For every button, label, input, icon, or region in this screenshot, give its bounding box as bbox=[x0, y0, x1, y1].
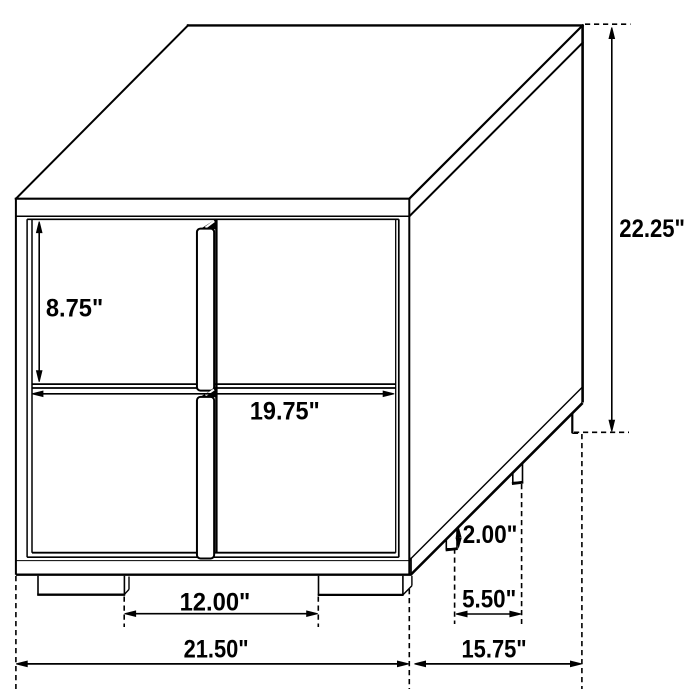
svg-text:15.75": 15.75" bbox=[462, 636, 527, 664]
svg-text:19.75": 19.75" bbox=[250, 397, 320, 425]
svg-text:2.00": 2.00" bbox=[463, 521, 518, 549]
svg-text:8.75": 8.75" bbox=[46, 294, 103, 322]
svg-text:21.50": 21.50" bbox=[184, 636, 249, 664]
svg-text:12.00": 12.00" bbox=[180, 588, 251, 616]
svg-text:5.50": 5.50" bbox=[462, 585, 516, 613]
svg-text:22.25": 22.25" bbox=[619, 215, 685, 243]
